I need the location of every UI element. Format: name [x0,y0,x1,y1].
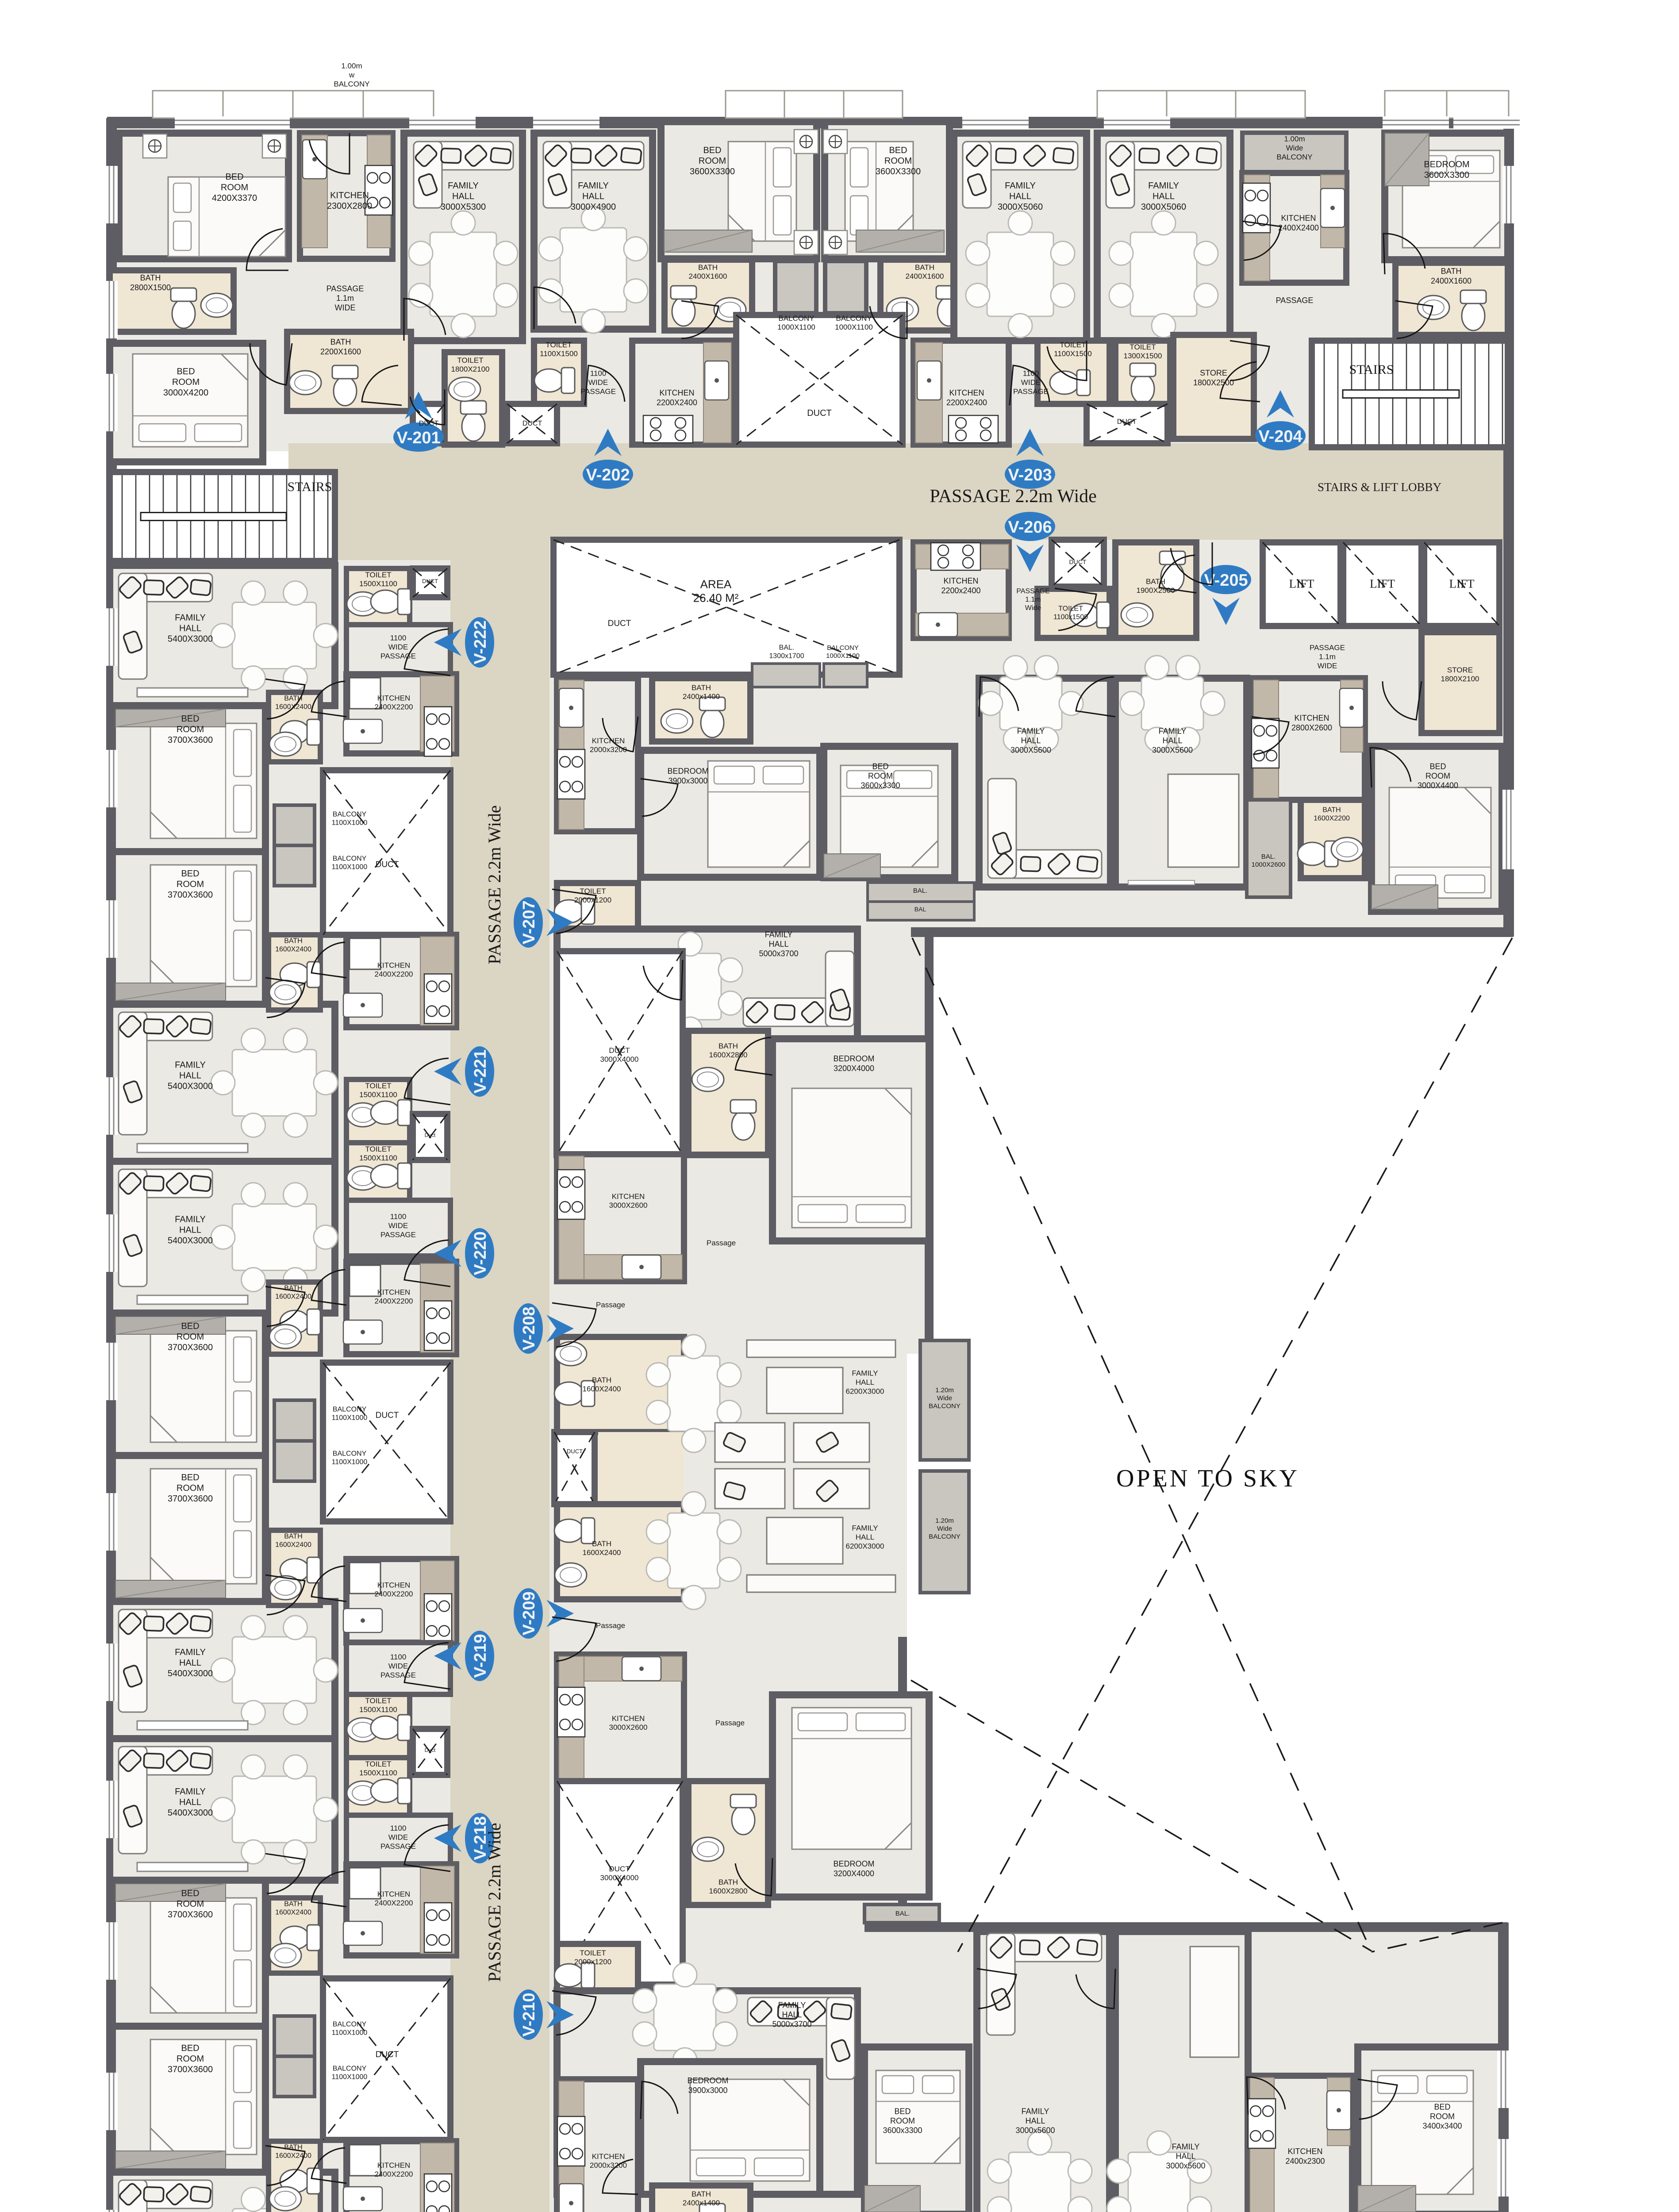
svg-text:PASSAGE: PASSAGE [1276,296,1314,305]
svg-text:LIFT: LIFT [1449,577,1475,591]
svg-text:DUCT: DUCT [807,408,832,418]
svg-text:STAIRS: STAIRS [288,480,332,494]
svg-text:DUCT: DUCT [376,1411,399,1420]
svg-text:DUCT: DUCT [567,1448,583,1455]
svg-text:KITCHEN2400X2200: KITCHEN2400X2200 [375,694,413,711]
svg-text:KITCHEN2200X2400: KITCHEN2200X2400 [946,388,987,407]
svg-text:V-219: V-219 [471,1634,490,1678]
svg-text:DUCT: DUCT [523,420,542,427]
svg-text:Passage: Passage [596,1621,625,1630]
svg-text:V-209: V-209 [520,1591,538,1635]
svg-text:BAL.: BAL. [913,887,928,895]
svg-text:BEDROOM3900x3000: BEDROOM3900x3000 [667,767,708,785]
svg-text:PASSAGE 2.2m Wide: PASSAGE 2.2m Wide [484,805,504,964]
svg-text:KITCHEN2400X2200: KITCHEN2400X2200 [375,961,413,978]
svg-text:V-208: V-208 [520,1306,538,1350]
svg-text:PASSAGE 2.2m Wide: PASSAGE 2.2m Wide [930,486,1097,507]
svg-text:OPEN TO SKY: OPEN TO SKY [1116,1465,1299,1492]
svg-text:DUCT: DUCT [422,578,438,584]
svg-text:TOILET2000x1200: TOILET2000x1200 [574,887,611,904]
svg-text:V-201: V-201 [396,429,440,447]
svg-text:V-220: V-220 [471,1231,490,1275]
svg-text:Passage: Passage [715,1719,745,1727]
svg-text:DUCT: DUCT [1069,558,1087,565]
svg-text:V-222: V-222 [471,620,490,664]
svg-text:Duct: Duct [425,1747,436,1753]
svg-text:DUCT: DUCT [419,420,439,427]
svg-text:Passage: Passage [596,1301,625,1309]
svg-text:KITCHEN2400X2200: KITCHEN2400X2200 [375,1288,413,1305]
svg-text:BAL: BAL [914,906,926,913]
svg-text:KITCHEN2800X2600: KITCHEN2800X2600 [1291,714,1332,732]
svg-text:V-206: V-206 [1008,518,1052,537]
svg-text:STAIRS & LIFT LOBBY: STAIRS & LIFT LOBBY [1318,480,1441,494]
svg-text:KITCHEN2000x3200: KITCHEN2000x3200 [590,2152,627,2170]
svg-text:BALCONY1000X1100: BALCONY1000X1100 [777,314,815,331]
svg-text:KITCHEN2200X2400: KITCHEN2200X2400 [657,388,697,407]
svg-text:KITCHEN2000x3200: KITCHEN2000x3200 [590,737,627,754]
svg-text:V-205: V-205 [1204,571,1248,590]
svg-text:V-207: V-207 [520,900,538,944]
svg-text:BALCONY1000X1100: BALCONY1000X1100 [835,314,873,331]
svg-text:V-221: V-221 [471,1049,490,1093]
svg-text:KITCHEN2400X2400: KITCHEN2400X2400 [1278,214,1319,232]
svg-text:KITCHEN2200x2400: KITCHEN2200x2400 [941,576,980,595]
svg-text:DUCT: DUCT [1117,418,1137,426]
svg-text:LIFT: LIFT [1289,577,1315,591]
svg-text:V-204: V-204 [1258,427,1302,446]
svg-text:BAL.: BAL. [895,1910,910,1917]
svg-text:BEDROOM3200X4000: BEDROOM3200X4000 [833,1859,874,1878]
svg-text:BEDROOM3200X4000: BEDROOM3200X4000 [833,1054,874,1073]
svg-text:TOILET2000x1200: TOILET2000x1200 [574,1949,611,1966]
svg-text:KITCHEN2400X2200: KITCHEN2400X2200 [375,1890,413,1907]
svg-text:KITCHEN3000X2600: KITCHEN3000X2600 [609,1714,648,1732]
svg-text:DUCT: DUCT [376,2050,399,2059]
svg-text:PASSAGE 2.2m Wide: PASSAGE 2.2m Wide [484,1823,504,1982]
svg-text:Duct: Duct [425,1132,436,1138]
svg-text:V-202: V-202 [586,466,630,484]
svg-text:KITCHEN2400X2200: KITCHEN2400X2200 [375,1581,413,1598]
svg-text:BALCONY1000X1100: BALCONY1000X1100 [826,644,860,660]
svg-text:KITCHEN2400x2300: KITCHEN2400x2300 [1285,2147,1325,2166]
svg-text:KITCHEN2400X2200: KITCHEN2400X2200 [375,2161,413,2178]
svg-text:KITCHEN3000X2600: KITCHEN3000X2600 [609,1192,648,1210]
svg-text:V-210: V-210 [520,1993,538,2036]
svg-text:BEDROOM3900x3000: BEDROOM3900x3000 [687,2076,728,2095]
svg-text:V-203: V-203 [1008,466,1052,484]
svg-text:STAIRS: STAIRS [1349,362,1394,377]
svg-text:DUCT: DUCT [376,860,399,869]
svg-text:Passage: Passage [707,1239,736,1247]
svg-text:DUCT: DUCT [608,619,631,628]
svg-text:LIFT: LIFT [1370,577,1395,591]
